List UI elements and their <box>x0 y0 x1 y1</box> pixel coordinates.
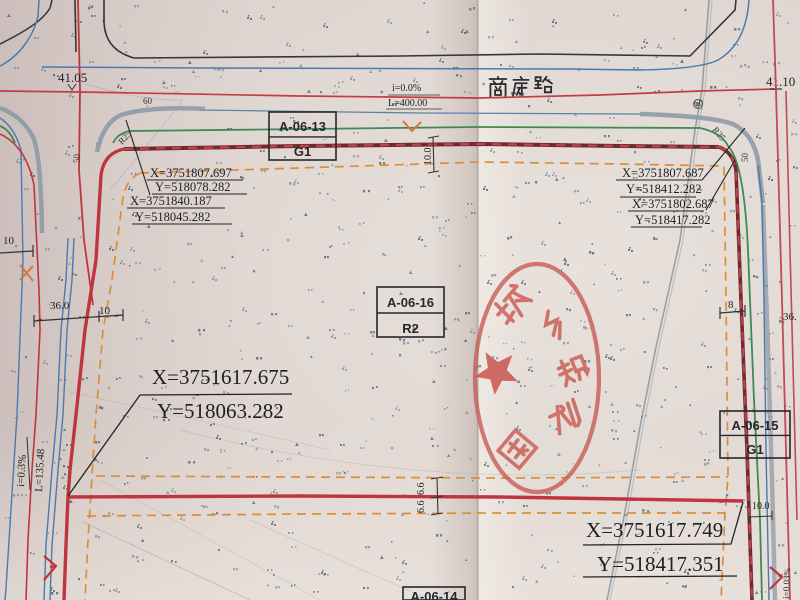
svg-text:i=0.3%: i=0.3% <box>15 454 29 487</box>
svg-text:A-06-14: A-06-14 <box>411 589 459 600</box>
svg-text:Y=518412.282: Y=518412.282 <box>626 182 701 196</box>
svg-text:10: 10 <box>99 305 111 317</box>
svg-text:10.0: 10.0 <box>423 148 434 166</box>
svg-text:A-06-13: A-06-13 <box>279 119 326 134</box>
svg-text:G1: G1 <box>294 144 311 159</box>
svg-text:i=0.03%: i=0.03% <box>781 567 792 599</box>
svg-text:41.05: 41.05 <box>58 70 87 85</box>
svg-text:A-06-16: A-06-16 <box>387 295 434 310</box>
svg-text:10.0: 10.0 <box>752 501 770 512</box>
svg-text:L=135.48: L=135.48 <box>33 448 47 492</box>
svg-text:Y=518417.351: Y=518417.351 <box>597 552 724 576</box>
svg-text:Y=518063.282: Y=518063.282 <box>157 399 284 423</box>
svg-text:36.: 36. <box>783 311 797 323</box>
svg-text:R2: R2 <box>402 321 419 336</box>
svg-text:Y=518045.282: Y=518045.282 <box>135 210 210 224</box>
svg-text:G1: G1 <box>746 442 763 457</box>
svg-text:Y=518078.282: Y=518078.282 <box>155 180 230 194</box>
svg-text:41.10: 41.10 <box>766 74 795 89</box>
svg-text:X=3751840.187: X=3751840.187 <box>130 194 212 208</box>
svg-text:60: 60 <box>143 96 153 106</box>
svg-text:X=3751807.697: X=3751807.697 <box>150 166 232 180</box>
svg-text:X=3751617.749: X=3751617.749 <box>586 518 723 542</box>
svg-text:50: 50 <box>72 154 82 164</box>
svg-text:6.6: 6.6 <box>416 483 427 496</box>
svg-text:X=3751617.675: X=3751617.675 <box>152 365 289 389</box>
svg-text:L=400.00: L=400.00 <box>388 98 427 109</box>
svg-text:50: 50 <box>740 153 750 163</box>
svg-text:36.0: 36.0 <box>50 300 70 312</box>
svg-text:Y=518417.282: Y=518417.282 <box>635 213 710 227</box>
svg-text:X=3751802.687: X=3751802.687 <box>632 197 714 211</box>
svg-text:8: 8 <box>696 103 700 110</box>
svg-text:8: 8 <box>728 299 734 311</box>
svg-text:6.6: 6.6 <box>416 501 427 514</box>
svg-text:10: 10 <box>3 235 15 247</box>
svg-text:A-06-15: A-06-15 <box>732 418 779 433</box>
svg-text:X=3751807.687: X=3751807.687 <box>622 166 704 180</box>
svg-text:i=0.0%: i=0.0% <box>392 83 421 94</box>
